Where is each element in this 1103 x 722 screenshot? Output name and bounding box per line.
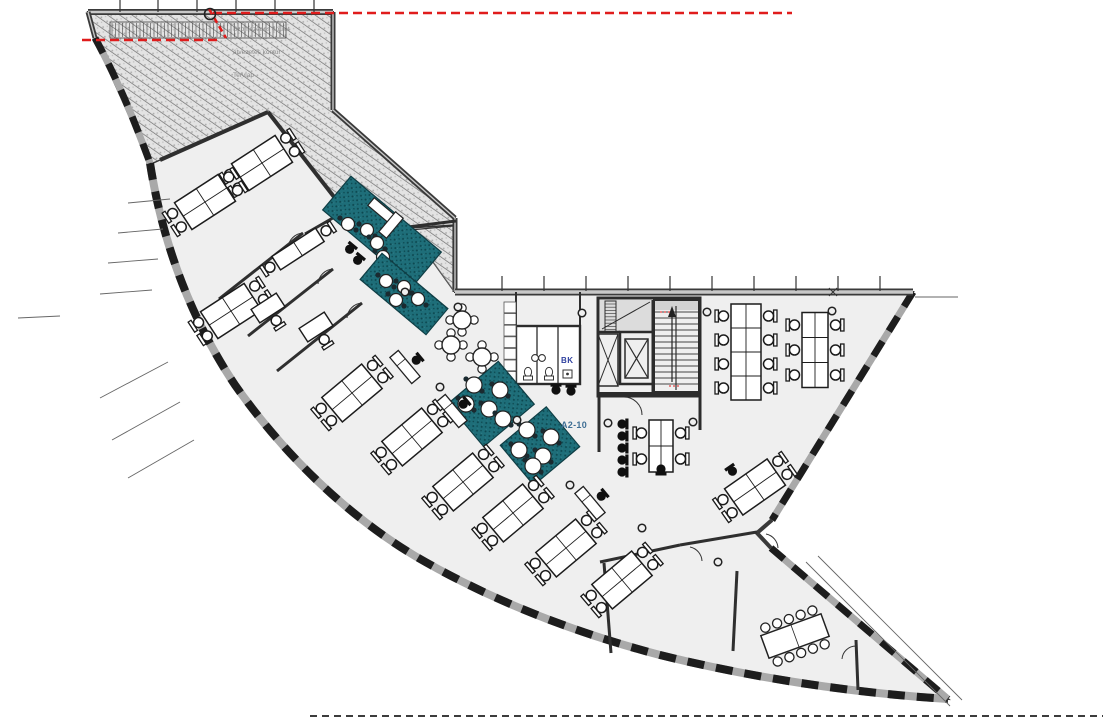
chair — [831, 319, 845, 331]
chair — [633, 427, 647, 439]
chair — [786, 319, 800, 331]
chair — [786, 369, 800, 381]
column — [578, 309, 586, 317]
reference-line — [112, 402, 180, 440]
desk-cluster — [786, 313, 844, 388]
wc-label: BK — [561, 356, 574, 365]
floor-plan-canvas: A2-10 BK Szomszédos épület átvezetés kon… — [0, 0, 1103, 722]
chair — [831, 344, 845, 356]
chair — [715, 382, 729, 394]
floor-plan-svg: A2-10 BK Szomszédos épület átvezetés kon… — [0, 0, 1103, 722]
column — [401, 288, 409, 296]
chair — [676, 453, 690, 465]
reference-line — [128, 440, 194, 478]
chair — [715, 310, 729, 322]
room-code-label: A2-10 — [561, 420, 587, 430]
chair — [715, 358, 729, 370]
column — [638, 524, 646, 532]
column — [436, 383, 444, 391]
column — [714, 558, 722, 566]
hatch-annotation-line: Tervlap — [233, 72, 254, 79]
reference-line — [18, 316, 60, 318]
hatch-annotation-line: átvezetés kontúr — [233, 49, 282, 56]
toilet — [545, 367, 552, 376]
wc-block — [516, 326, 580, 384]
column — [566, 481, 574, 489]
column — [828, 307, 836, 315]
chair — [764, 334, 778, 346]
reference-line — [100, 362, 168, 398]
column — [703, 308, 711, 316]
chair — [831, 369, 845, 381]
column — [454, 303, 462, 311]
chair — [715, 334, 729, 346]
reference-line — [108, 259, 158, 263]
column — [604, 419, 612, 427]
chair — [633, 453, 647, 465]
chair-column — [617, 419, 628, 478]
toilet — [524, 367, 531, 376]
reference-line — [118, 229, 163, 233]
chair — [764, 310, 778, 322]
chair — [764, 358, 778, 370]
reference-line — [100, 290, 152, 294]
hatch-annotation-line: Szomszédos épület — [233, 26, 290, 33]
chair — [764, 382, 778, 394]
column — [513, 416, 521, 424]
chair — [786, 344, 800, 356]
column — [689, 418, 697, 426]
chair — [676, 427, 690, 439]
interior-wall — [856, 640, 858, 690]
